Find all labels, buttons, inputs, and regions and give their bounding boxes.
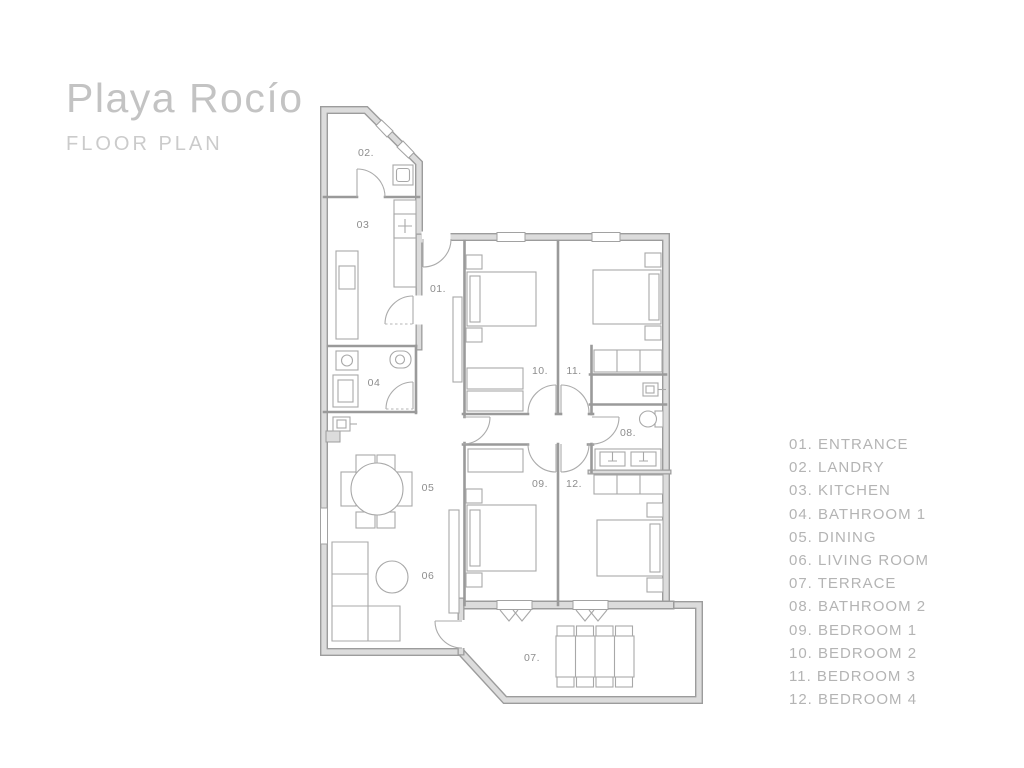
wall-pilaster [326,431,340,442]
kitchen-opening [415,296,424,325]
door-bedroom4-icon [561,444,589,472]
room-label-bathroom1: 04 [368,377,381,389]
door-hall-dining-icon [463,417,490,444]
room-label-bedroom3: 11. [566,365,581,377]
room-label-dining: 05 [422,482,435,494]
room-label-living: 06 [422,570,435,582]
room-label-entrance: 01. [430,283,446,295]
legend-item: 03. KITCHEN [789,479,929,502]
kitchen-counter-icon [336,200,416,339]
legend-item: 02. LANDRY [789,456,929,479]
legend-item: 10. BEDROOM 2 [789,642,929,665]
room-label-kitchen: 03 [357,219,370,231]
floor-plan-page: Playa Rocío FLOOR PLAN [0,0,1024,768]
legend-item: 04. BATHROOM 1 [789,503,929,526]
terrace-opening [457,620,466,648]
legend-item: 07. TERRACE [789,572,929,595]
legend-item: 06. LIVING ROOM [789,549,929,572]
room-label-bedroom4: 12. [566,478,582,490]
room-label-bathroom2: 08. [620,427,636,439]
awning-mark-icon [500,610,518,621]
door-kitchen-icon [385,296,413,324]
legend-item: 11. BEDROOM 3 [789,665,929,688]
bed-icon [597,503,663,592]
terrace-table-icon [556,626,634,687]
dining-table-icon [341,455,412,528]
door-bedroom2-icon [528,385,556,413]
legend-item: 01. ENTRANCE [789,433,929,456]
awning-mark-icon [513,610,531,621]
room-label-bedroom1: 09. [532,478,548,490]
window-icon [497,233,525,242]
room-label-bedroom2: 10. [532,365,548,377]
window-icon [592,233,620,242]
bed-icon [466,255,536,342]
door-bathroom2-icon [592,417,619,444]
living-closet-icon [449,510,459,613]
door-bedroom3-icon [561,385,589,413]
awning-mark-icon [589,610,607,621]
sofa-icon [332,542,408,641]
legend-item: 08. BATHROOM 2 [789,595,929,618]
entrance-opening [422,232,451,243]
coffee-table-icon [376,561,408,593]
wardrobe-icon [594,350,662,372]
window-icon [497,601,532,610]
window-icon [321,508,328,544]
washer-icon [393,165,413,185]
room-legend: 01. ENTRANCE 02. LANDRY 03. KITCHEN 04. … [789,433,929,711]
wardrobe-icon [468,449,523,472]
legend-item: 09. BEDROOM 1 [789,619,929,642]
door-entrance-icon [423,239,451,267]
room-label-terrace: 07. [524,652,540,664]
wardrobe-icon [594,475,663,494]
bed-icon [466,489,536,587]
bed-icon [593,253,661,340]
window-icon [573,601,608,610]
room-label-laundry: 02. [358,147,374,159]
wardrobe-icon [467,368,523,389]
legend-item: 05. DINING [789,526,929,549]
door-laundry-icon [357,169,385,197]
legend-item: 12. BEDROOM 4 [789,688,929,711]
door-bedroom1-icon [528,444,556,472]
bathroom1-fixtures-icon [333,351,411,431]
hall-closet-icon [453,297,462,382]
wardrobe-icon [467,391,523,411]
door-bathroom1-icon [386,382,413,409]
awning-mark-icon [576,610,594,621]
